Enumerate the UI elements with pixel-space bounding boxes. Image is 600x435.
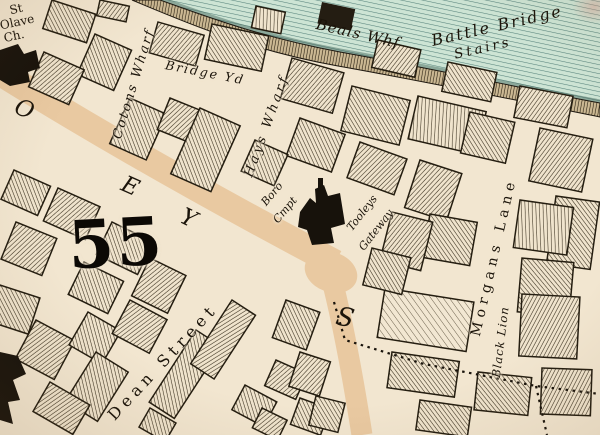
grid-number: 55 [66,208,165,279]
map-viewport[interactable]: St Olave Ch. Beals Whf Battle Bridge Sta… [0,0,600,435]
